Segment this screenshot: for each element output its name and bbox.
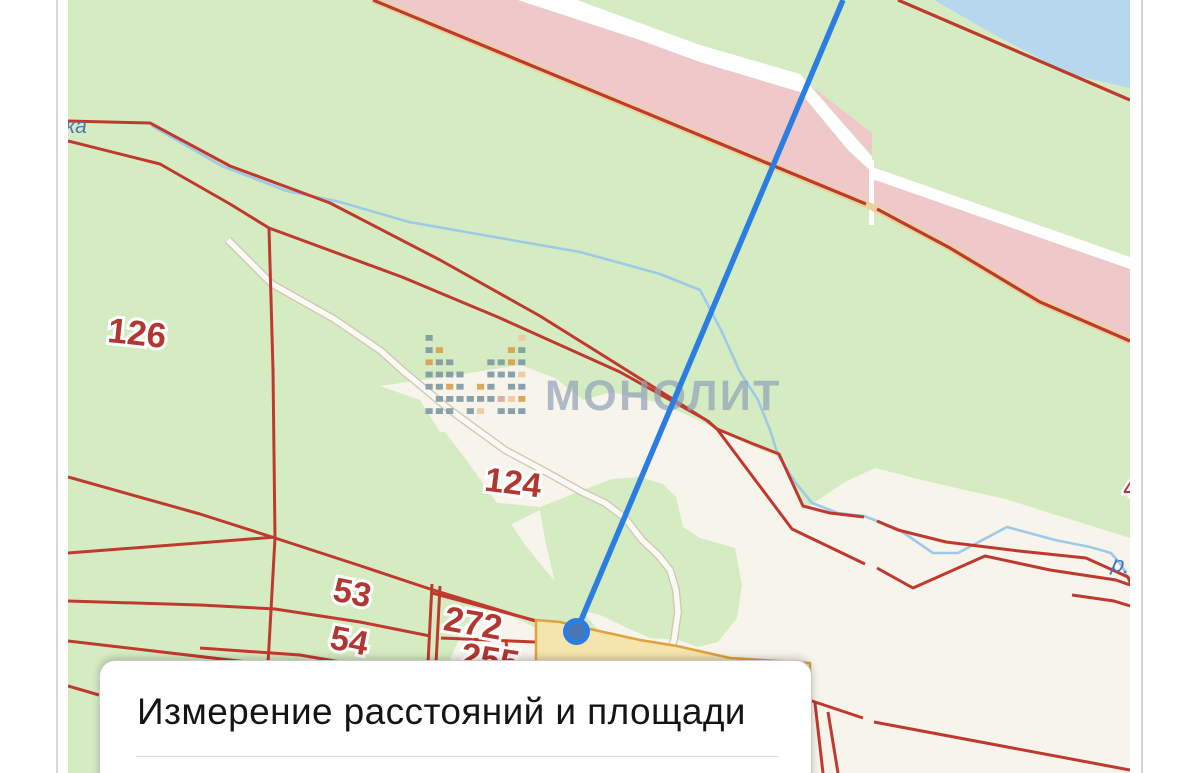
svg-text:МОНОЛИТ: МОНОЛИТ xyxy=(545,372,782,420)
svg-text:4: 4 xyxy=(1123,479,1135,501)
svg-text:54: 54 xyxy=(327,619,371,664)
svg-text:126: 126 xyxy=(106,311,168,356)
svg-text:53: 53 xyxy=(330,571,374,616)
svg-text:ка: ка xyxy=(65,115,87,138)
svg-text:124: 124 xyxy=(483,461,544,506)
